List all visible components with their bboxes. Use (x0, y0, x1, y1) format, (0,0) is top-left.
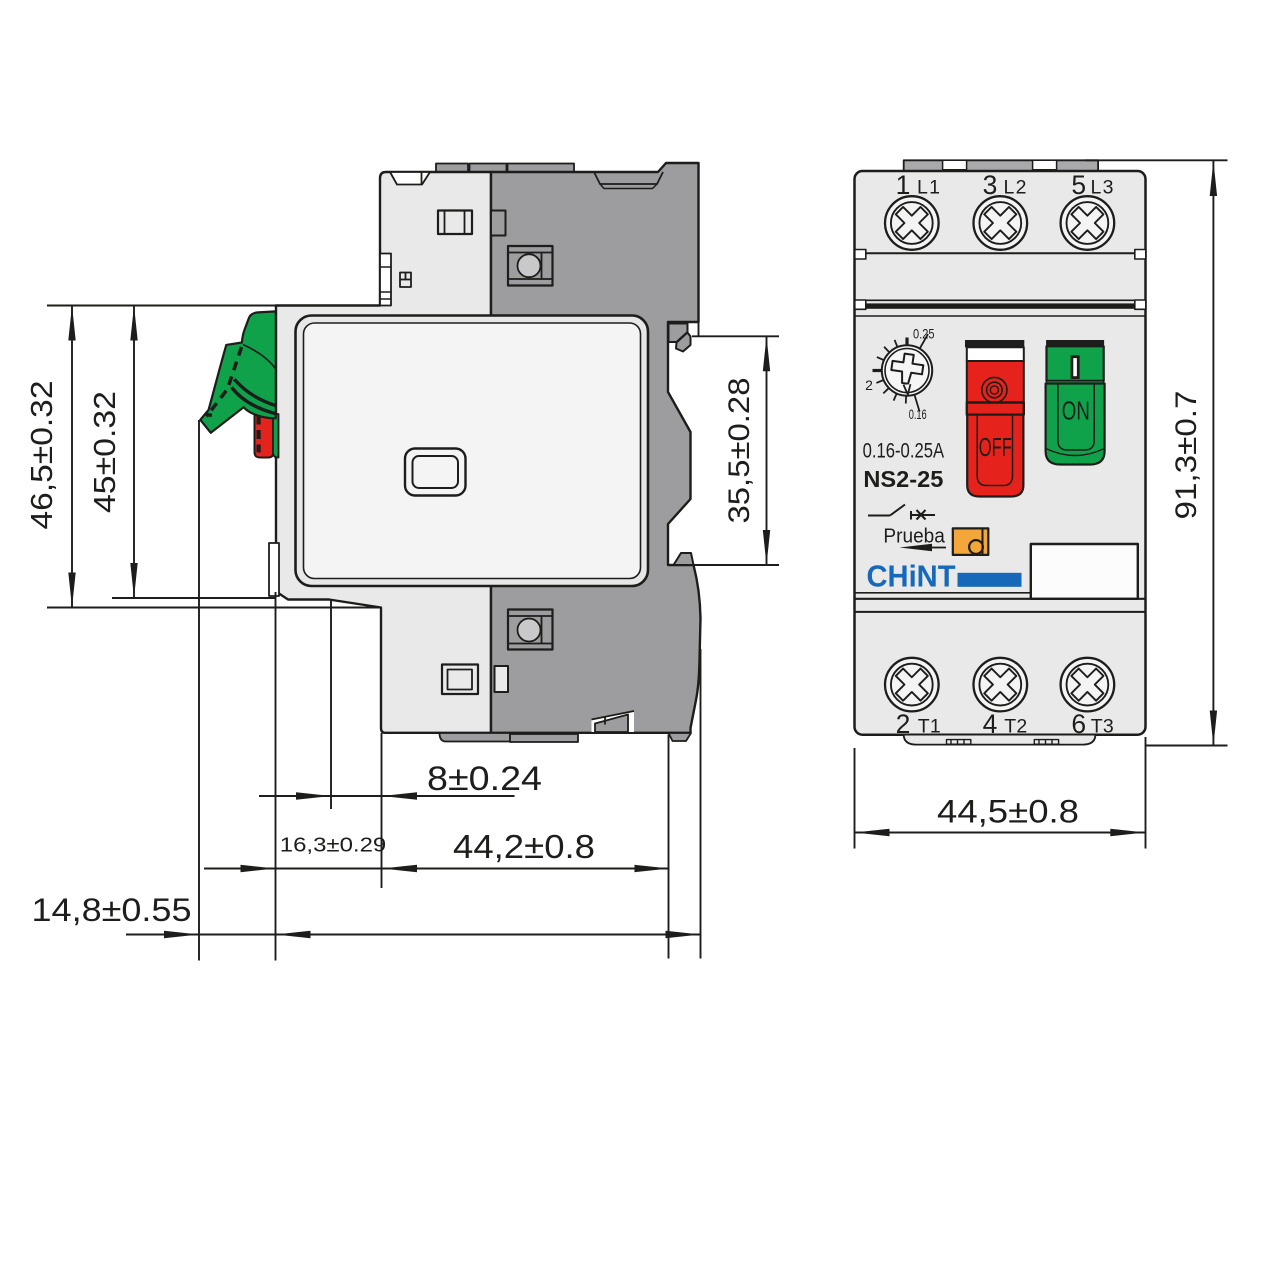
svg-text:NS2-25: NS2-25 (863, 466, 943, 492)
svg-text:2: 2 (865, 377, 873, 393)
svg-text:44,2±0.8: 44,2±0.8 (453, 828, 595, 865)
svg-text:14,8±0.55: 14,8±0.55 (32, 892, 192, 928)
svg-text:4: 4 (983, 709, 998, 739)
svg-text:45±0.32: 45±0.32 (87, 391, 122, 513)
svg-text:2: 2 (896, 709, 911, 739)
svg-text:Prueba: Prueba (883, 525, 945, 547)
svg-text:6: 6 (1071, 709, 1086, 739)
svg-text:L1: L1 (917, 177, 940, 199)
svg-text:46,5±0.32: 46,5±0.32 (24, 381, 59, 530)
svg-text:CHiNT: CHiNT (867, 560, 956, 594)
svg-text:16,3±0.29: 16,3±0.29 (280, 835, 387, 857)
svg-text:35,5±0.28: 35,5±0.28 (723, 378, 756, 524)
svg-text:44,5±0.8: 44,5±0.8 (937, 794, 1079, 830)
svg-text:L3: L3 (1091, 177, 1114, 199)
svg-text:0.16-0.25A: 0.16-0.25A (863, 438, 945, 462)
svg-text:T1: T1 (918, 715, 941, 737)
svg-text:T3: T3 (1091, 715, 1114, 737)
svg-text:0.16: 0.16 (909, 407, 927, 422)
svg-text:0.25: 0.25 (913, 327, 935, 342)
svg-text:91,3±0.7: 91,3±0.7 (1170, 391, 1203, 520)
svg-text:L2: L2 (1004, 177, 1027, 199)
svg-text:3: 3 (983, 170, 998, 200)
svg-text:8±0.24: 8±0.24 (427, 760, 542, 798)
svg-text:T2: T2 (1004, 715, 1027, 737)
svg-text:ON: ON (1062, 396, 1090, 426)
svg-text:OFF: OFF (979, 432, 1012, 462)
